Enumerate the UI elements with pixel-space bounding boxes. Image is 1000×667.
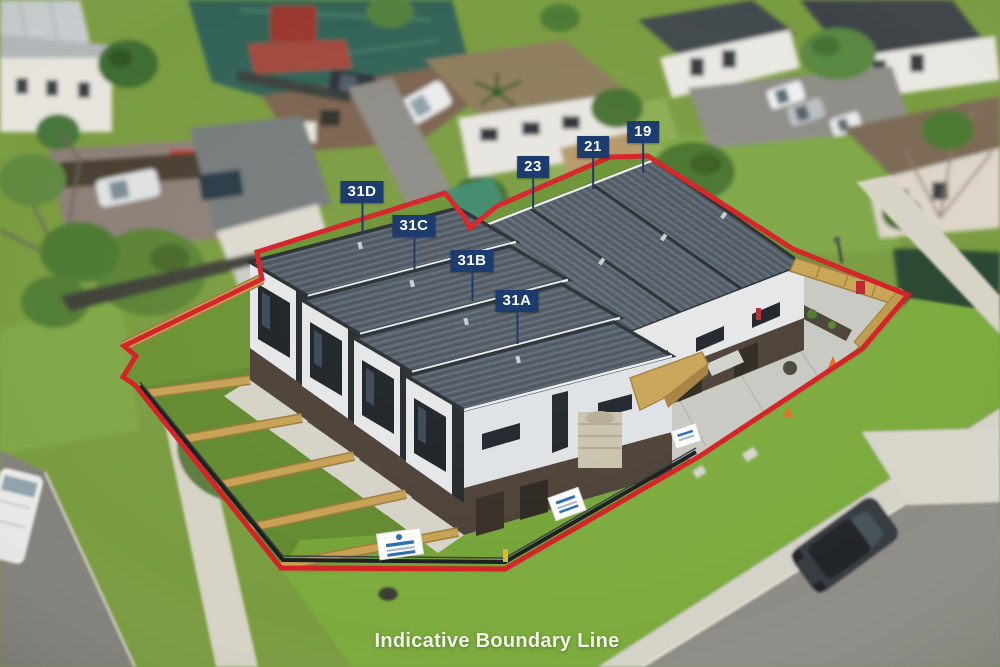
unit-label-21-text: 21	[577, 136, 609, 158]
unit-label-31c-text: 31C	[392, 215, 435, 237]
unit-label-31d-leader	[361, 203, 363, 234]
aerial-photo: 31D 31C 31B 31A 23 21 19 Indicative Boun…	[0, 0, 1000, 667]
unit-label-23-leader	[532, 178, 534, 208]
unit-label-31b-leader	[471, 272, 473, 301]
unit-label-31c-leader	[413, 237, 415, 269]
unit-label-31c: 31C	[392, 215, 435, 269]
unit-label-31b-text: 31B	[450, 250, 493, 272]
unit-label-21: 21	[577, 136, 609, 189]
unit-label-31a-leader	[516, 312, 518, 344]
unit-label-19-text: 19	[627, 121, 659, 143]
unit-label-21-leader	[592, 158, 594, 189]
unit-label-19-leader	[642, 143, 644, 173]
unit-label-19: 19	[627, 121, 659, 173]
unit-label-31a: 31A	[495, 290, 538, 344]
unit-label-31a-text: 31A	[495, 290, 538, 312]
unit-label-31b: 31B	[450, 250, 493, 301]
unit-label-31d: 31D	[340, 181, 383, 234]
unit-label-23: 23	[517, 156, 549, 208]
unit-label-31d-text: 31D	[340, 181, 383, 203]
unit-label-23-text: 23	[517, 156, 549, 178]
boundary-caption: Indicative Boundary Line	[374, 630, 619, 653]
